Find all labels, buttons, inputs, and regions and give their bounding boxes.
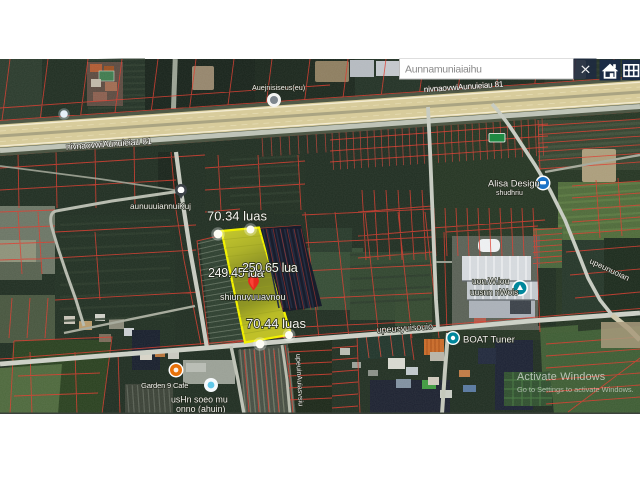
svg-text:uusnn nWois: uusnn nWois bbox=[470, 287, 518, 297]
svg-text:70.44 luas: 70.44 luas bbox=[246, 316, 306, 331]
svg-text:usHn soeo mu: usHn soeo mu bbox=[171, 395, 228, 405]
svg-text:shudhriu: shudhriu bbox=[496, 190, 523, 197]
svg-text:250.65 lua: 250.65 lua bbox=[242, 261, 298, 275]
svg-text:Activate Windows: Activate Windows bbox=[517, 371, 606, 383]
svg-text:Aunnamuniaiaihu: Aunnamuniaiaihu bbox=[405, 64, 482, 76]
svg-text:aunuuuiannuiKuj: aunuuuiannuiKuj bbox=[130, 202, 191, 211]
svg-text:Garden 9 Cafe: Garden 9 Cafe bbox=[141, 381, 188, 390]
svg-text:shiunuvuuavnou: shiunuvuuavnou bbox=[220, 292, 286, 302]
svg-text:Alisa Design: Alisa Design bbox=[488, 179, 540, 189]
svg-text:Go to Settings to activate Win: Go to Settings to activate Windows. bbox=[517, 385, 634, 394]
svg-text:Auejnisiseus(eu): Auejnisiseus(eu) bbox=[252, 83, 305, 92]
svg-text:uon.W.iou: uon.W.iou bbox=[472, 276, 510, 286]
svg-text:70.34 luas: 70.34 luas bbox=[207, 209, 267, 224]
svg-text:BOAT Tuner: BOAT Tuner bbox=[463, 335, 515, 346]
